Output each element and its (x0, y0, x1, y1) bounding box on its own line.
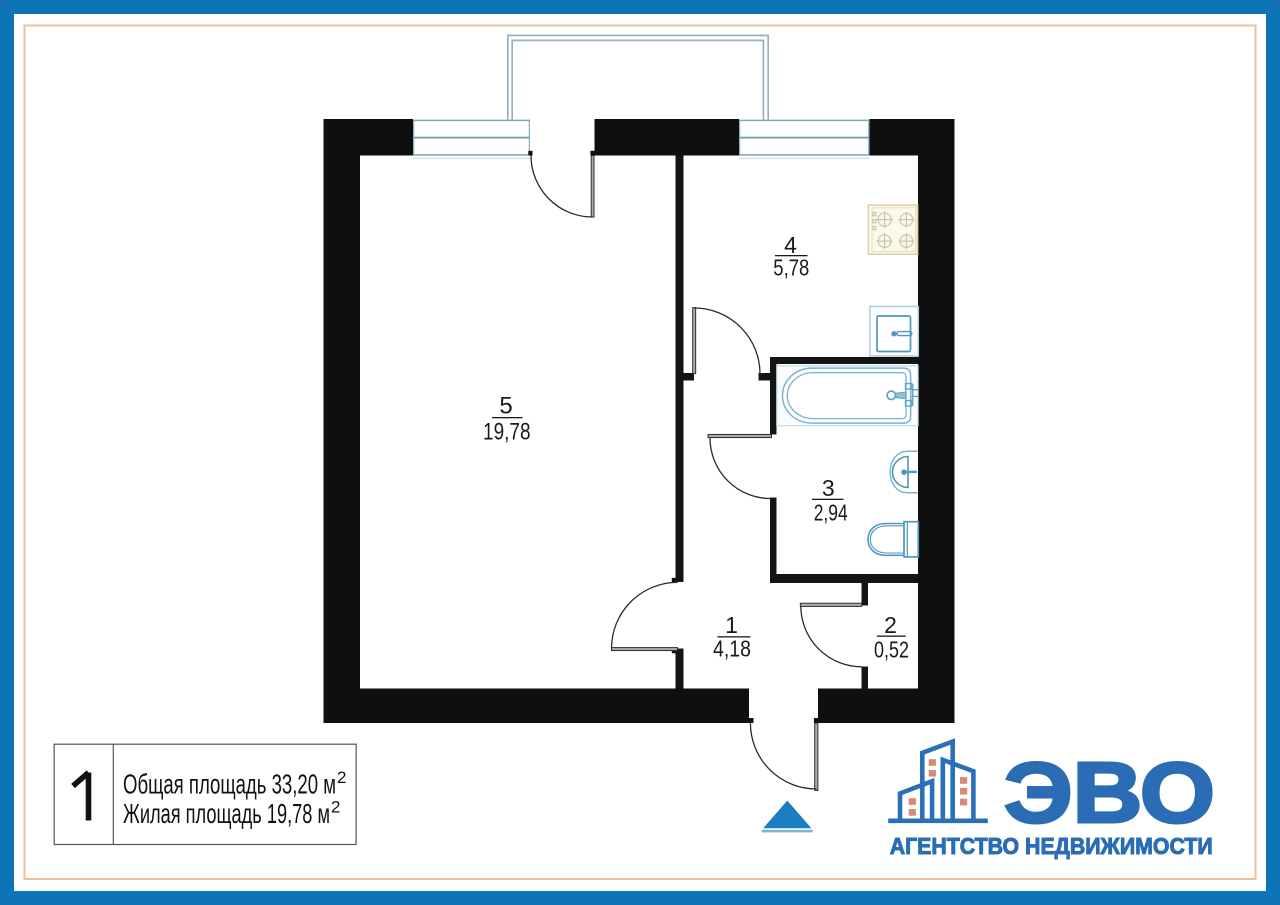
svg-text:4,18: 4,18 (713, 636, 751, 662)
svg-text:Жилая площадь 19,78 м: Жилая площадь 19,78 м (123, 798, 330, 829)
svg-text:2,94: 2,94 (814, 500, 848, 526)
svg-text:2: 2 (331, 798, 340, 817)
svg-text:ЭВО: ЭВО (1004, 746, 1215, 841)
svg-text:Общая площадь 33,20 м: Общая площадь 33,20 м (123, 769, 336, 800)
svg-text:2: 2 (337, 768, 346, 787)
svg-text:1: 1 (725, 612, 738, 638)
svg-text:2: 2 (884, 612, 897, 638)
svg-text:19,78: 19,78 (483, 419, 531, 446)
svg-text:5: 5 (499, 393, 512, 420)
svg-text:5,78: 5,78 (773, 254, 809, 280)
svg-text:0,52: 0,52 (874, 636, 909, 662)
svg-text:АГЕНТСТВО НЕДВИЖИМОСТИ: АГЕНТСТВО НЕДВИЖИМОСТИ (890, 833, 1213, 859)
svg-text:3: 3 (822, 475, 835, 501)
